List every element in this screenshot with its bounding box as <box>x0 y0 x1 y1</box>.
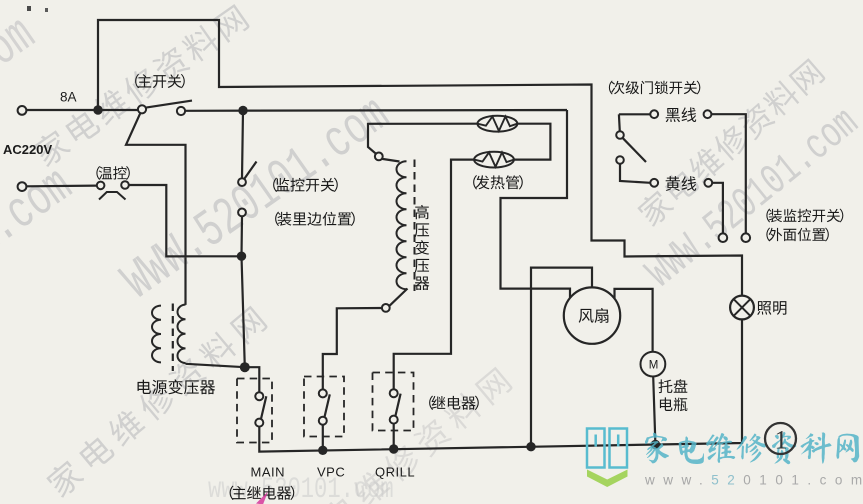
svg-text:MAIN: MAIN <box>251 465 286 480</box>
svg-text:QRILL: QRILL <box>375 465 415 480</box>
svg-text:www.520101.com: www.520101.com <box>208 472 394 504</box>
svg-text:M: M <box>649 360 659 372</box>
svg-text:www.520101.com: www.520101.com <box>644 473 863 488</box>
svg-text:AC220V: AC220V <box>3 142 52 157</box>
svg-text:1: 1 <box>775 426 788 455</box>
svg-text:VPC: VPC <box>317 465 345 480</box>
svg-text:8A: 8A <box>60 90 77 105</box>
